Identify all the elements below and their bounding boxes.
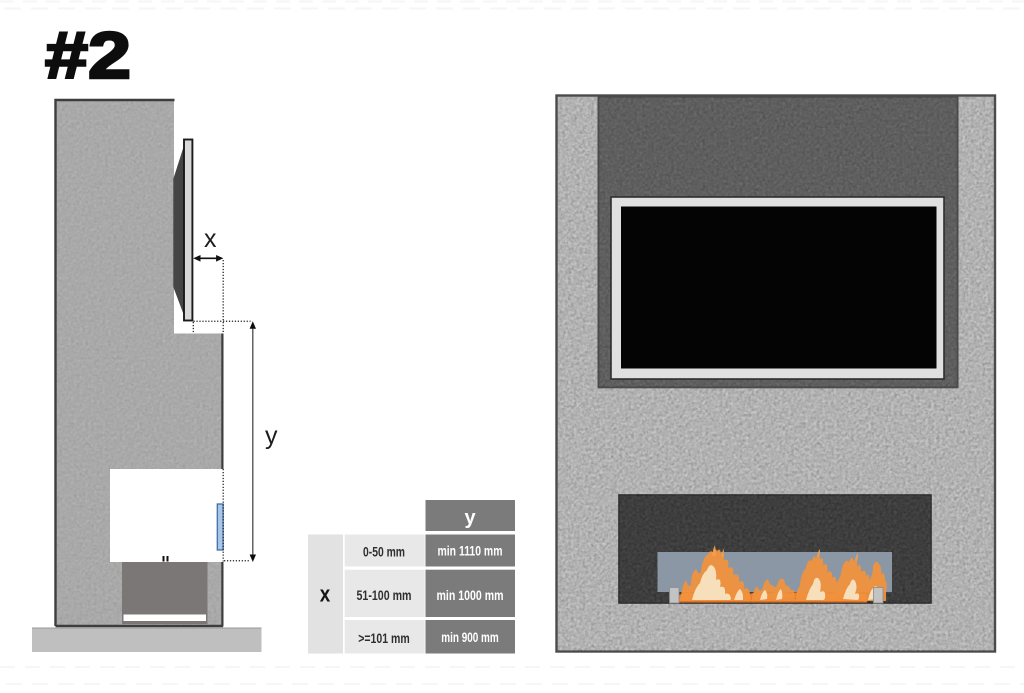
svg-text:min 1110 mm: min 1110 mm bbox=[438, 543, 503, 558]
svg-text:x: x bbox=[204, 225, 217, 253]
svg-text:>=101 mm: >=101 mm bbox=[358, 630, 410, 646]
svg-text:51-100 mm: 51-100 mm bbox=[357, 587, 412, 603]
svg-text:y: y bbox=[265, 422, 278, 450]
svg-text:y: y bbox=[464, 507, 476, 529]
svg-text:0-50 mm: 0-50 mm bbox=[363, 543, 405, 559]
svg-text:x: x bbox=[320, 582, 331, 607]
svg-text:min 900 mm: min 900 mm bbox=[441, 630, 499, 645]
svg-text:#2: #2 bbox=[45, 18, 131, 92]
svg-text:min 1000 mm: min 1000 mm bbox=[437, 588, 504, 603]
